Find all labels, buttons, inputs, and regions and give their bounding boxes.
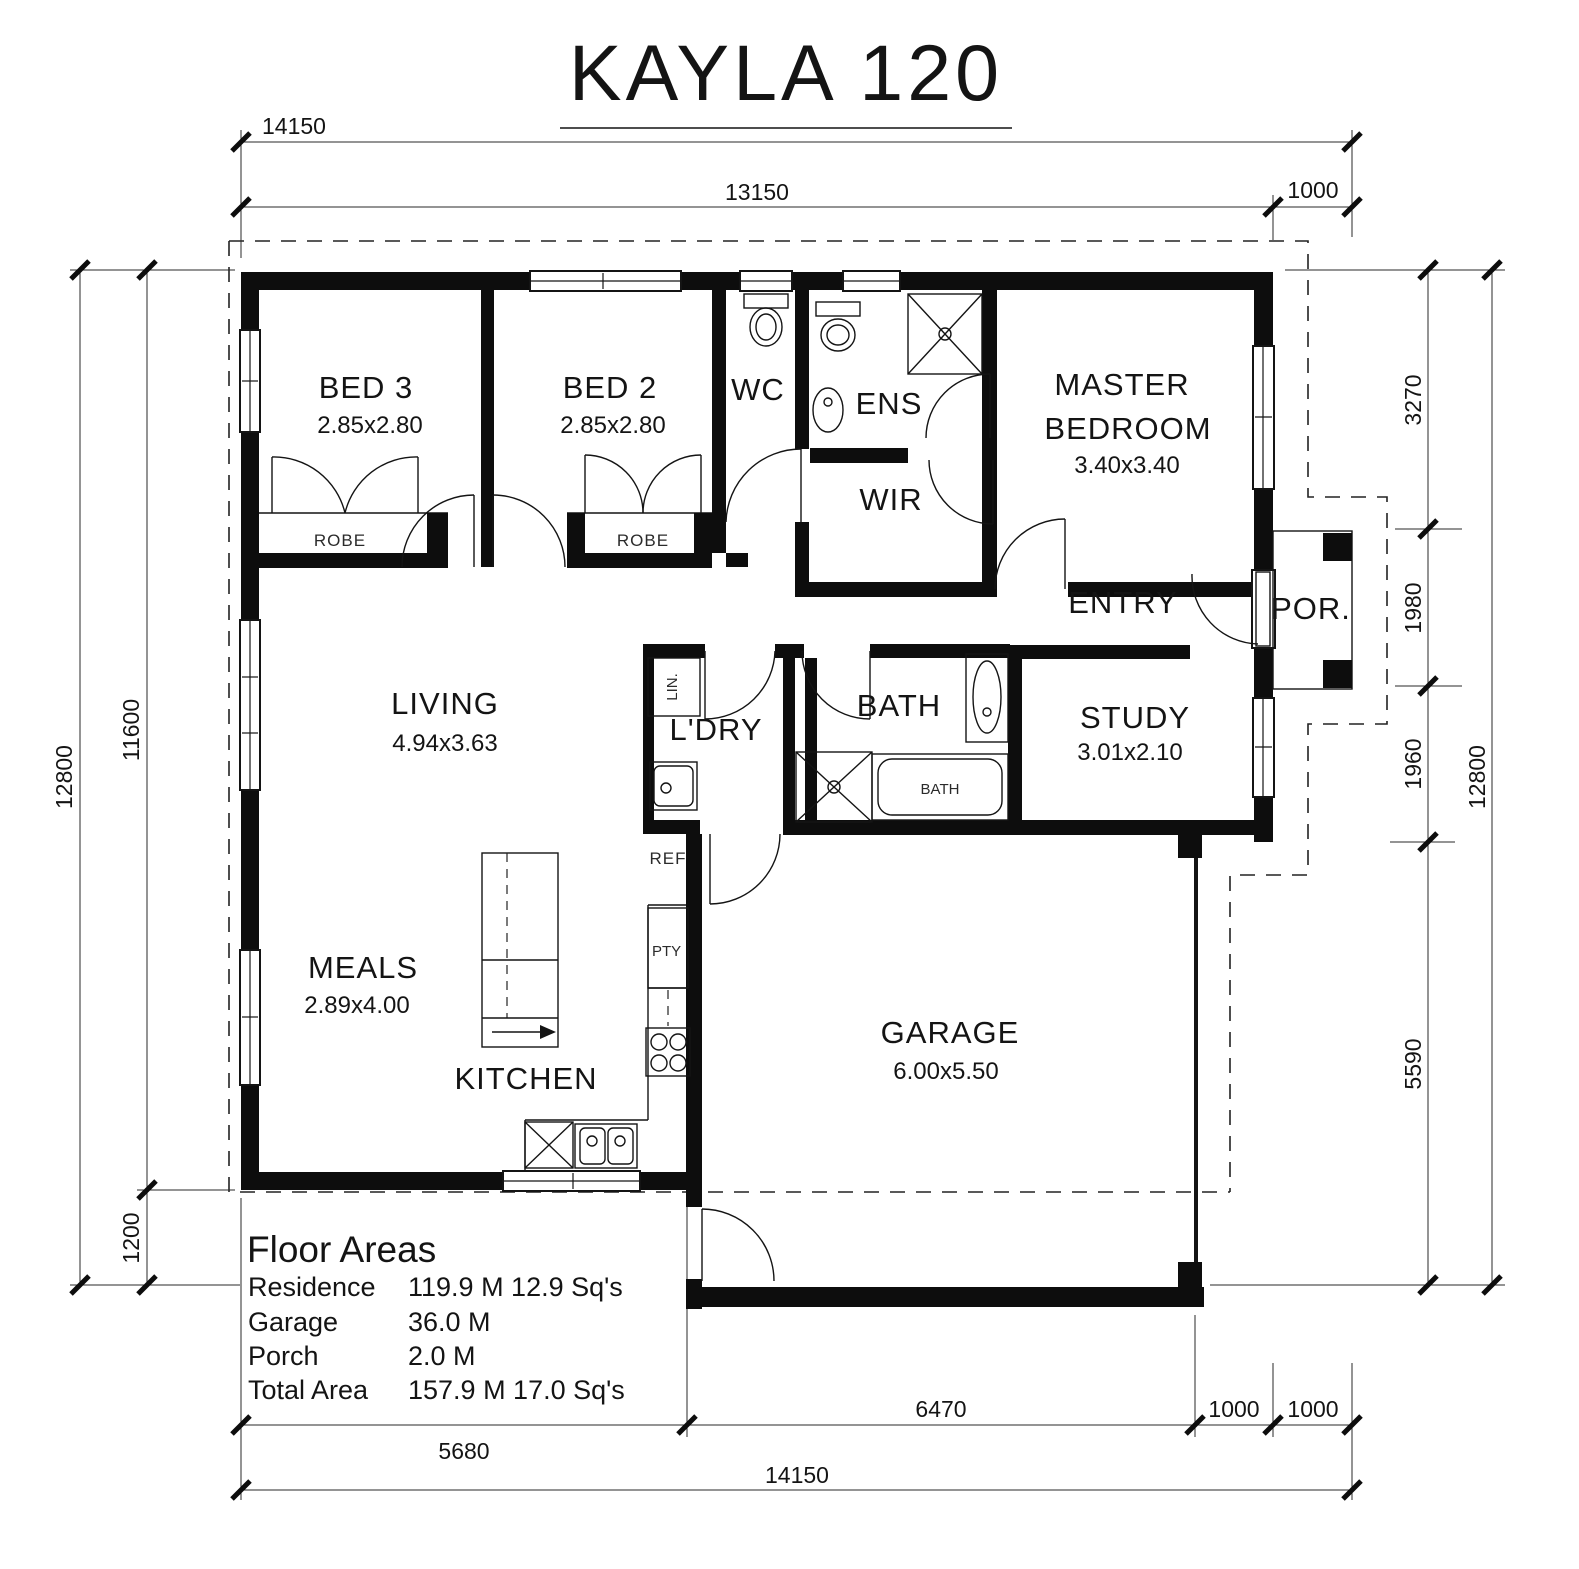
linen-label: LIN.	[664, 673, 681, 701]
floor-areas-heading: Floor Areas	[247, 1229, 436, 1270]
room-size-garage: 6.00x5.50	[893, 1058, 998, 1085]
floor-areas-row-value: 2.0 M	[408, 1341, 476, 1371]
room-label-meals: MEALS	[308, 950, 418, 985]
room-label-living: LIVING	[391, 686, 499, 721]
island-bench	[482, 853, 558, 1047]
floor-areas-row-label: Total Area	[248, 1375, 369, 1405]
dim-bottom-seg4: 1000	[1287, 1396, 1338, 1422]
room-label-bed3: BED 3	[319, 370, 414, 405]
dim-left-total: 12800	[51, 745, 77, 809]
dim-top-porch: 1000	[1287, 177, 1338, 203]
dim-right-seg2: 1980	[1400, 582, 1426, 633]
floor-areas-table: Floor Areas Residence 119.9 M 12.9 Sq's …	[247, 1229, 625, 1405]
floor-areas-row-label: Garage	[248, 1307, 338, 1337]
room-label-porch: POR.	[1271, 591, 1351, 626]
floor-areas-row-value: 36.0 M	[408, 1307, 491, 1337]
room-size-bed2: 2.85x2.80	[560, 412, 665, 439]
fridge-label: REF	[650, 849, 687, 868]
plan-title: KAYLA 120	[569, 28, 1003, 117]
kitchen-sink	[575, 1124, 637, 1168]
dim-top-main: 13150	[725, 179, 789, 205]
room-size-master: 3.40x3.40	[1074, 452, 1179, 479]
room-label-bath: BATH	[857, 688, 941, 723]
room-label-garage: GARAGE	[881, 1015, 1020, 1050]
room-label-study: STUDY	[1080, 700, 1190, 735]
floor-areas-row-value: 119.9 M 12.9 Sq's	[408, 1272, 623, 1302]
dim-left-lower: 1200	[118, 1212, 144, 1263]
floor-areas-row-value: 157.9 M 17.0 Sq's	[408, 1375, 625, 1405]
dim-bottom-seg1: 5680	[438, 1438, 489, 1464]
room-label-bed2: BED 2	[563, 370, 658, 405]
island-arrow	[540, 1025, 556, 1039]
floor-plan-page: KAYLA 120 14150 13150 1000 12800 11600 1…	[0, 0, 1579, 1569]
dim-right-seg3: 1960	[1400, 738, 1426, 789]
room-label-ldry: L'DRY	[669, 712, 762, 747]
room-size-bed3: 2.85x2.80	[317, 412, 422, 439]
wc-fixtures	[744, 294, 788, 346]
room-label-wir: WIR	[859, 482, 922, 517]
plan-title-group: KAYLA 120	[560, 28, 1012, 128]
dim-right-total: 12800	[1464, 745, 1490, 809]
dim-left-upper: 11600	[118, 699, 144, 761]
dim-right-seg4: 5590	[1400, 1038, 1426, 1089]
room-label-master-1: MASTER	[1054, 367, 1189, 402]
dim-bottom-seg3: 1000	[1208, 1396, 1259, 1422]
dim-bottom-seg2: 6470	[915, 1396, 966, 1422]
room-label-ens: ENS	[856, 386, 923, 421]
room-label-wc: WC	[731, 372, 785, 407]
dim-bottom-total: 14150	[765, 1462, 829, 1488]
floor-plan-drawing: KAYLA 120 14150 13150 1000 12800 11600 1…	[0, 0, 1579, 1569]
dim-right-seg1: 3270	[1400, 374, 1426, 425]
room-size-study: 3.01x2.10	[1077, 739, 1182, 766]
dim-top-total: 14150	[262, 113, 326, 139]
robe-bed3: ROBE	[241, 457, 448, 568]
room-label-kitchen: KITCHEN	[454, 1061, 597, 1096]
room-label-master-2: BEDROOM	[1044, 411, 1211, 446]
room-size-meals: 2.89x4.00	[304, 992, 409, 1019]
porch-post-bottom	[1323, 660, 1352, 688]
room-labels: BED 3 2.85x2.80 BED 2 2.85x2.80 WC ENS M…	[304, 367, 1351, 1096]
bath-tub-label: BATH	[921, 781, 960, 798]
porch-post-top	[1323, 533, 1352, 561]
robe3-label: ROBE	[314, 531, 366, 550]
dimensions-left: 12800 11600 1200	[51, 261, 240, 1294]
robe2-label: ROBE	[617, 531, 669, 550]
room-size-living: 4.94x3.63	[392, 730, 497, 757]
bath-fixtures: BATH	[796, 654, 1008, 822]
pantry-label: PTY	[652, 943, 681, 960]
floor-areas-row-label: Porch	[248, 1341, 319, 1371]
robe-bed2: ROBE	[567, 455, 712, 568]
room-label-entry: ENTRY	[1068, 585, 1178, 620]
dimensions-top: 14150 13150 1000	[232, 113, 1361, 258]
floor-areas-row-label: Residence	[248, 1272, 376, 1302]
kitchen-fixtures: PTY	[482, 853, 690, 1170]
